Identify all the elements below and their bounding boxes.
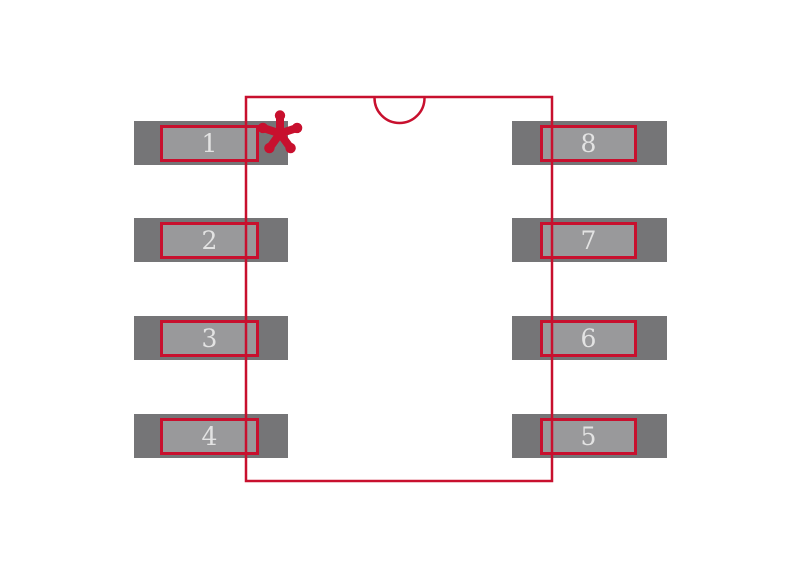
- silkscreen-overlay: [0, 0, 800, 579]
- pad-4-number: 4: [202, 424, 218, 449]
- pad-6-number: 6: [581, 326, 597, 351]
- pad-7: 7: [512, 218, 667, 262]
- pad-1-number: 1: [202, 131, 218, 156]
- pad-2: 2: [134, 218, 288, 262]
- pad-5-copper: 5: [540, 418, 637, 455]
- pad-5-number: 5: [581, 424, 597, 449]
- pad-3-number: 3: [202, 326, 218, 351]
- asterisk-arm-tip: [292, 123, 302, 133]
- pad-7-number: 7: [581, 228, 597, 253]
- pad-2-number: 2: [202, 228, 218, 253]
- pad-5: 5: [512, 414, 667, 458]
- pad-6: 6: [512, 316, 667, 360]
- asterisk-arm-tip: [275, 110, 285, 120]
- pad-1-copper: 1: [160, 125, 259, 162]
- pad-8-copper: 8: [540, 125, 637, 162]
- footprint-canvas: 1 2 3 4 8 7 6 5: [0, 0, 800, 579]
- pad-7-copper: 7: [540, 222, 637, 259]
- pad-2-copper: 2: [160, 222, 259, 259]
- pad-3-copper: 3: [160, 320, 259, 357]
- pad-8: 8: [512, 121, 667, 165]
- pin1-notch: [375, 98, 425, 123]
- pad-3: 3: [134, 316, 288, 360]
- pad-4-copper: 4: [160, 418, 259, 455]
- pad-4: 4: [134, 414, 288, 458]
- pad-1: 1: [134, 121, 288, 165]
- pad-8-number: 8: [581, 131, 597, 156]
- pad-6-copper: 6: [540, 320, 637, 357]
- component-body-outline: [246, 97, 552, 481]
